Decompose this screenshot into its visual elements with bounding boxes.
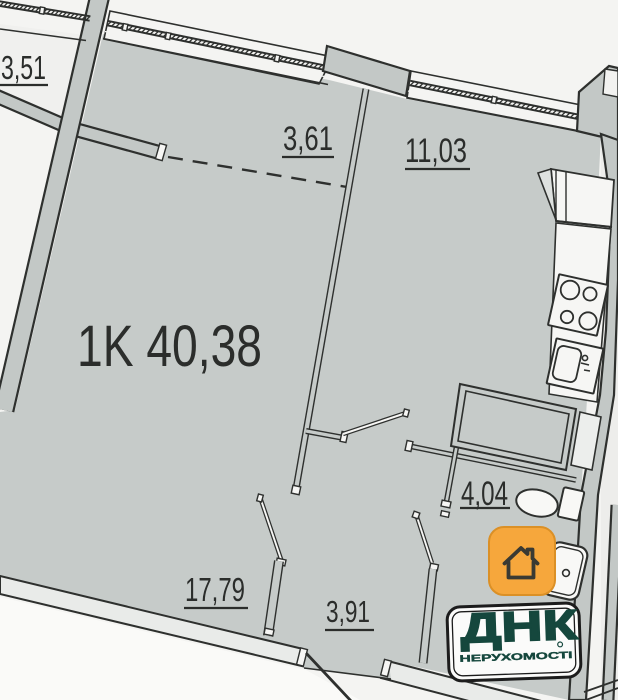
svg-text:17,79: 17,79 (185, 571, 245, 608)
svg-text:ДНК: ДНК (460, 601, 579, 652)
svg-text:3,51: 3,51 (1, 49, 46, 86)
svg-text:1K 40,38: 1K 40,38 (77, 314, 262, 379)
svg-text:3,91: 3,91 (326, 594, 370, 629)
svg-text:3,61: 3,61 (283, 120, 333, 158)
svg-text:11,03: 11,03 (405, 132, 467, 170)
